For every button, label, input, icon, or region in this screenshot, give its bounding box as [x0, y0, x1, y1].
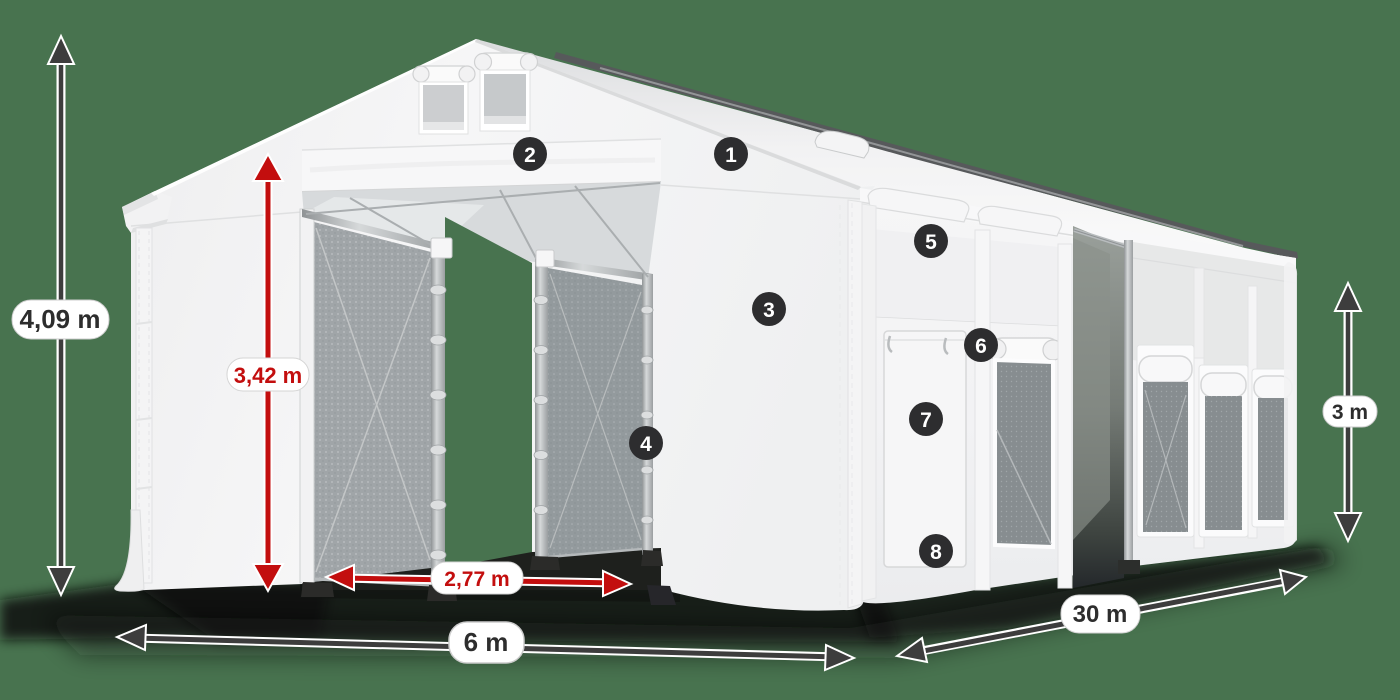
svg-text:7: 7 [920, 409, 932, 432]
svg-text:6: 6 [975, 335, 987, 358]
svg-text:3,42 m: 3,42 m [234, 363, 303, 388]
svg-text:4: 4 [640, 433, 652, 456]
svg-text:3: 3 [763, 299, 775, 322]
svg-text:30 m: 30 m [1073, 601, 1128, 628]
svg-text:8: 8 [930, 541, 942, 564]
svg-text:3 m: 3 m [1332, 401, 1368, 424]
svg-text:1: 1 [725, 144, 737, 167]
svg-text:6 m: 6 m [464, 627, 509, 657]
svg-text:2: 2 [524, 144, 536, 167]
svg-text:4,09 m: 4,09 m [20, 304, 101, 334]
svg-text:2,77 m: 2,77 m [444, 568, 509, 591]
svg-text:5: 5 [925, 231, 937, 254]
